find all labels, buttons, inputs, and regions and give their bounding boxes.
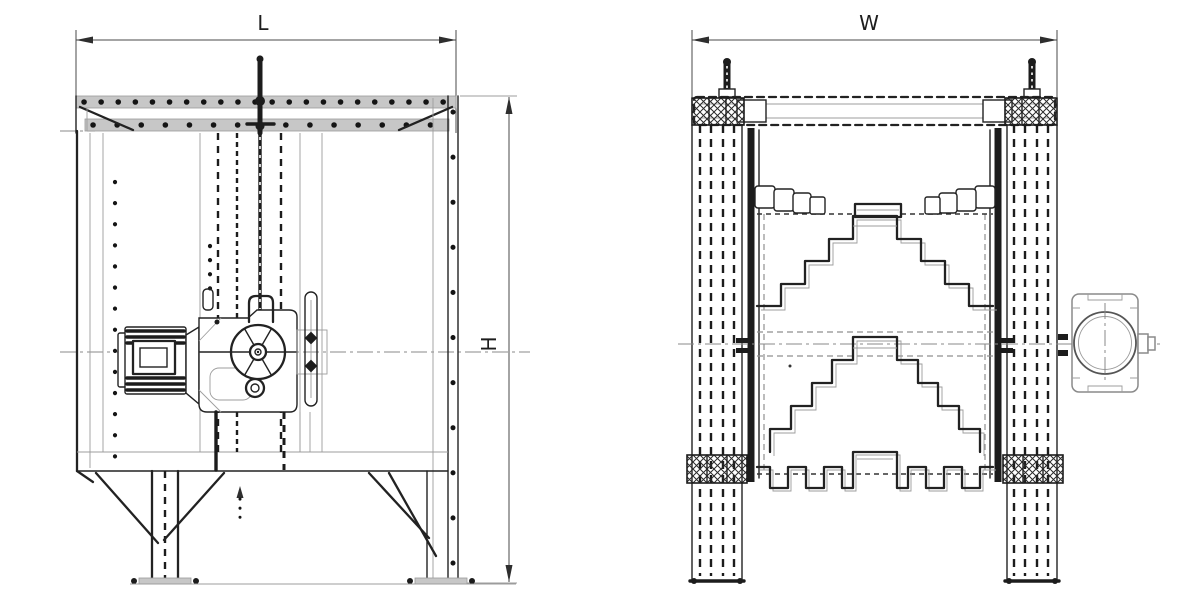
dimension-H: H bbox=[460, 96, 517, 583]
ribbon-flight-lower bbox=[770, 337, 984, 456]
motor-coupling bbox=[186, 327, 199, 404]
column-head-flange-left bbox=[692, 98, 744, 125]
flow-arrow bbox=[237, 486, 244, 518]
dimension-L-label: L bbox=[257, 11, 269, 35]
bearing-assembly bbox=[1072, 294, 1155, 392]
column-right bbox=[1005, 125, 1059, 584]
trough-wall-right bbox=[985, 128, 1068, 482]
dimension-H-label: H bbox=[477, 336, 501, 351]
column-head-flange-right bbox=[1005, 98, 1057, 125]
top-frame-flange bbox=[76, 96, 456, 133]
brace bbox=[389, 473, 436, 556]
technical-drawing: L H bbox=[0, 0, 1187, 606]
top-serrated-band bbox=[755, 186, 995, 217]
drain-plug bbox=[246, 379, 264, 397]
foot-left bbox=[139, 578, 191, 584]
brace bbox=[164, 473, 224, 540]
brace bbox=[96, 473, 158, 543]
front-view: L H bbox=[60, 11, 530, 584]
eyebolt-left bbox=[719, 58, 735, 97]
column-left bbox=[690, 125, 744, 584]
handwheel bbox=[231, 325, 285, 379]
slide-bracket bbox=[297, 292, 327, 406]
foot-right bbox=[415, 578, 467, 584]
dimension-W-label: W bbox=[859, 11, 879, 35]
ribbon-flight-upper bbox=[757, 216, 997, 310]
eyebolt-right bbox=[1024, 58, 1040, 97]
support-base bbox=[96, 471, 516, 584]
shaft-stub bbox=[1138, 334, 1148, 353]
dimension-W: W bbox=[692, 11, 1057, 97]
column-mid-flange-right bbox=[1003, 455, 1063, 483]
motor bbox=[118, 327, 199, 404]
dimension-L: L bbox=[76, 11, 456, 133]
bottom-serrated-band bbox=[757, 452, 996, 491]
drawing-canvas: L H bbox=[0, 0, 1187, 606]
side-view: W bbox=[678, 11, 1164, 584]
top-beam bbox=[694, 97, 1055, 125]
gearbox-mount bbox=[216, 412, 310, 470]
gearbox bbox=[199, 292, 327, 470]
column-mid-flange-left bbox=[687, 455, 747, 483]
